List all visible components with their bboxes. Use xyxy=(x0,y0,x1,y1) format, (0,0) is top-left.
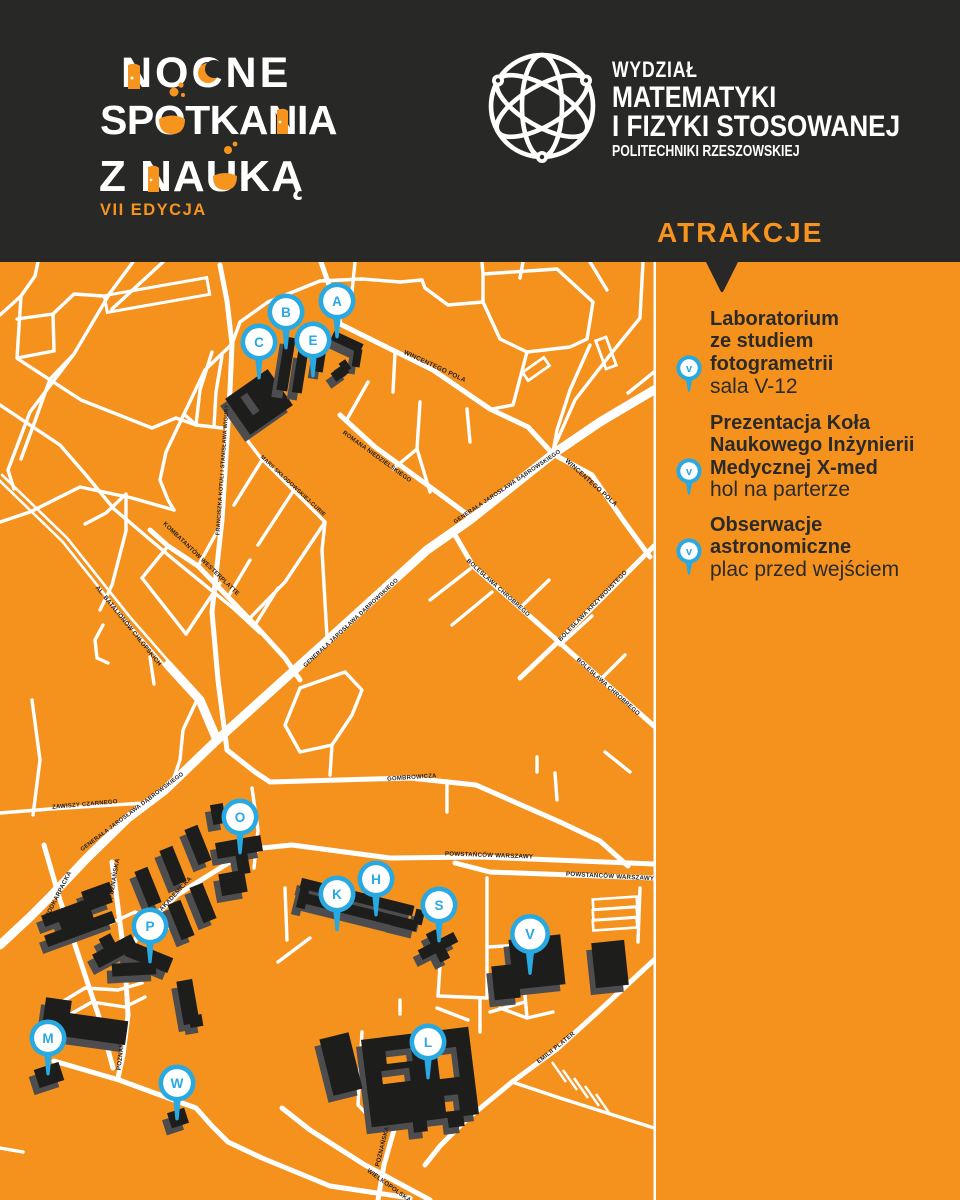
svg-text:O: O xyxy=(235,810,246,825)
svg-text:L: L xyxy=(424,1035,432,1050)
svg-text:A: A xyxy=(332,294,342,309)
svg-text:K: K xyxy=(332,887,342,902)
svg-text:H: H xyxy=(371,872,381,887)
svg-text:v: v xyxy=(686,363,693,375)
svg-text:P: P xyxy=(145,919,154,934)
svg-text:C: C xyxy=(254,335,264,350)
svg-text:E: E xyxy=(308,333,317,348)
svg-text:M: M xyxy=(42,1031,53,1046)
svg-text:v: v xyxy=(686,466,693,478)
svg-text:W: W xyxy=(171,1076,184,1091)
svg-text:v: v xyxy=(686,546,693,558)
svg-text:B: B xyxy=(281,305,291,320)
svg-text:V: V xyxy=(525,927,535,943)
svg-text:S: S xyxy=(434,898,443,913)
